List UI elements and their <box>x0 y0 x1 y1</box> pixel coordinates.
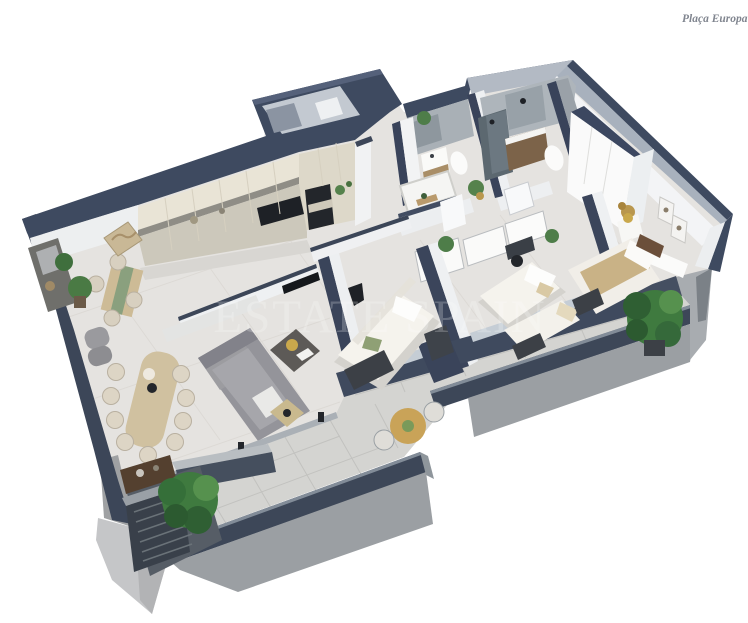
svg-text:ESTATE SPAIN: ESTATE SPAIN <box>213 291 546 343</box>
svg-text:Plaça Europa N: Plaça Europa N <box>682 13 748 25</box>
